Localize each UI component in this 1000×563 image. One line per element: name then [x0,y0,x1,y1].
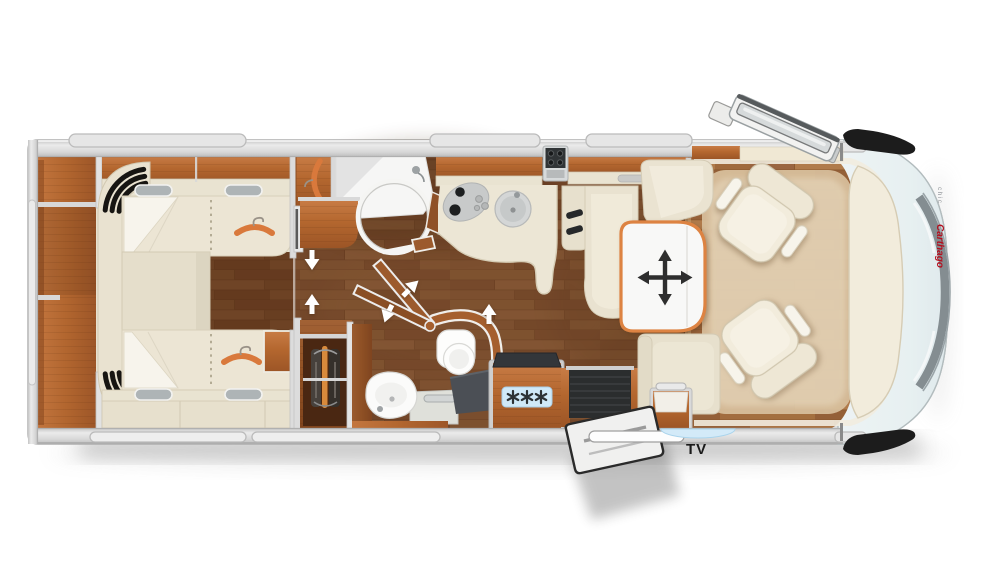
svg-text:Carthago: Carthago [934,224,945,268]
svg-text:c h i c: c h i c [936,187,942,203]
svg-text:TV: TV [686,441,707,458]
